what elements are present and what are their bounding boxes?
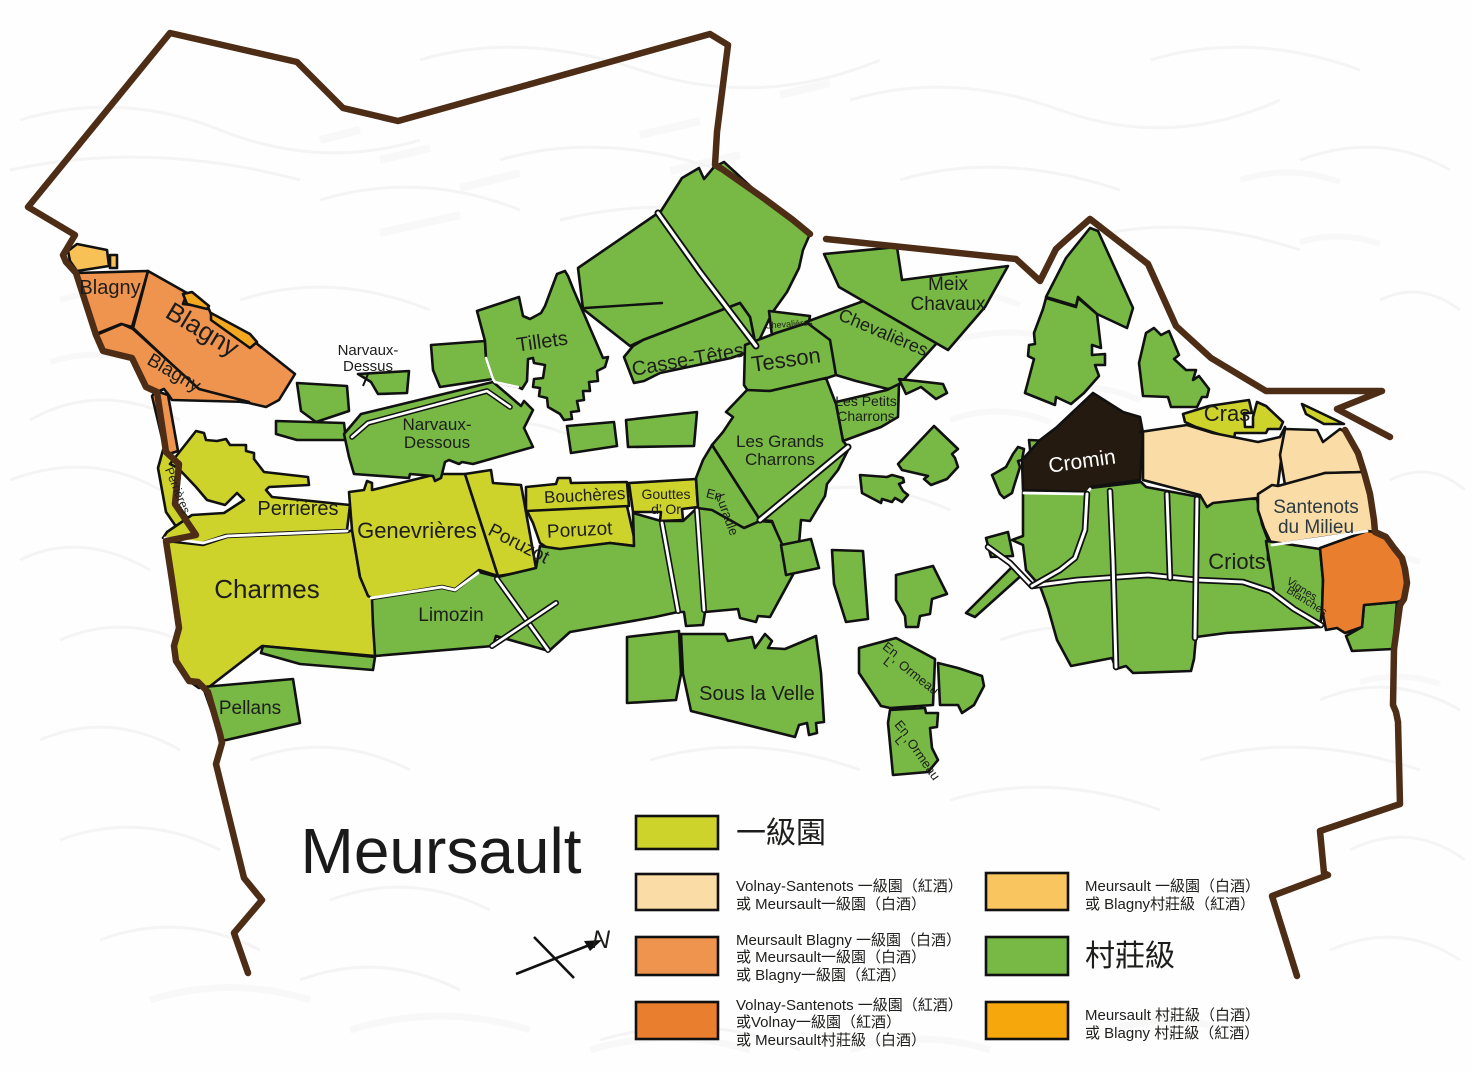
svg-text:Criots: Criots [1208, 549, 1265, 574]
svg-text:或 Meursault村莊級（白酒）: 或 Meursault村莊級（白酒） [736, 1032, 926, 1049]
svg-text:Narvaux-: Narvaux- [338, 342, 399, 359]
svg-text:Les Grands: Les Grands [736, 432, 824, 451]
svg-text:Les Petits: Les Petits [835, 393, 896, 409]
svg-text:N: N [592, 926, 611, 954]
svg-text:Meursault 一級園（白酒）: Meursault 一級園（白酒） [1085, 878, 1260, 895]
svg-text:Charrons: Charrons [837, 408, 895, 424]
svg-text:或 Blagny 村莊級（紅酒）: 或 Blagny 村莊級（紅酒） [1085, 1025, 1259, 1042]
svg-text:或 Meursault一級園（白酒）: 或 Meursault一級園（白酒） [736, 896, 926, 913]
svg-text:Limozin: Limozin [418, 605, 483, 626]
svg-text:du Milieu: du Milieu [1278, 517, 1354, 538]
svg-text:或 Blagny一級園（紅酒）: 或 Blagny一級園（紅酒） [736, 967, 906, 984]
svg-text:Meursault: Meursault [301, 815, 582, 887]
svg-text:Poruzot: Poruzot [546, 518, 613, 542]
svg-text:Dessous: Dessous [404, 433, 470, 452]
svg-text:或 Meursault一級園（白酒）: 或 Meursault一級園（白酒） [736, 949, 926, 966]
svg-text:d’ Or: d’ Or [651, 501, 681, 517]
svg-text:Blagny: Blagny [79, 277, 140, 299]
svg-text:Cras: Cras [1204, 401, 1250, 426]
svg-text:Dessus: Dessus [343, 358, 393, 375]
svg-text:或 Blagny村莊級（紅酒）: 或 Blagny村莊級（紅酒） [1085, 896, 1255, 913]
svg-text:Pellans: Pellans [219, 698, 281, 719]
svg-text:或Volnay一級園（紅酒）: 或Volnay一級園（紅酒） [736, 1014, 901, 1031]
svg-text:Charmes: Charmes [214, 574, 319, 604]
svg-text:Genevrières: Genevrières [357, 518, 477, 543]
svg-text:Chavaux: Chavaux [911, 294, 986, 315]
svg-text:Meursault Blagny 一級園（白酒）: Meursault Blagny 一級園（白酒） [736, 932, 961, 949]
svg-text:Sous la Velle: Sous la Velle [699, 683, 815, 705]
svg-text:Volnay-Santenots 一級園（紅酒）: Volnay-Santenots 一級園（紅酒） [736, 997, 963, 1014]
svg-text:Narvaux-: Narvaux- [403, 415, 472, 434]
svg-text:Perrières: Perrières [257, 498, 338, 520]
svg-text:一級園: 一級園 [736, 817, 826, 850]
svg-text:Santenots: Santenots [1273, 497, 1359, 518]
svg-text:Meursault 村莊級（白酒）: Meursault 村莊級（白酒） [1085, 1007, 1260, 1024]
svg-text:Meix: Meix [928, 274, 969, 295]
svg-text:Charrons: Charrons [745, 450, 815, 469]
svg-text:村莊級: 村莊級 [1085, 940, 1175, 973]
svg-text:Gouttes: Gouttes [641, 486, 690, 502]
svg-text:Volnay-Santenots 一級園（紅酒）: Volnay-Santenots 一級園（紅酒） [736, 878, 963, 895]
